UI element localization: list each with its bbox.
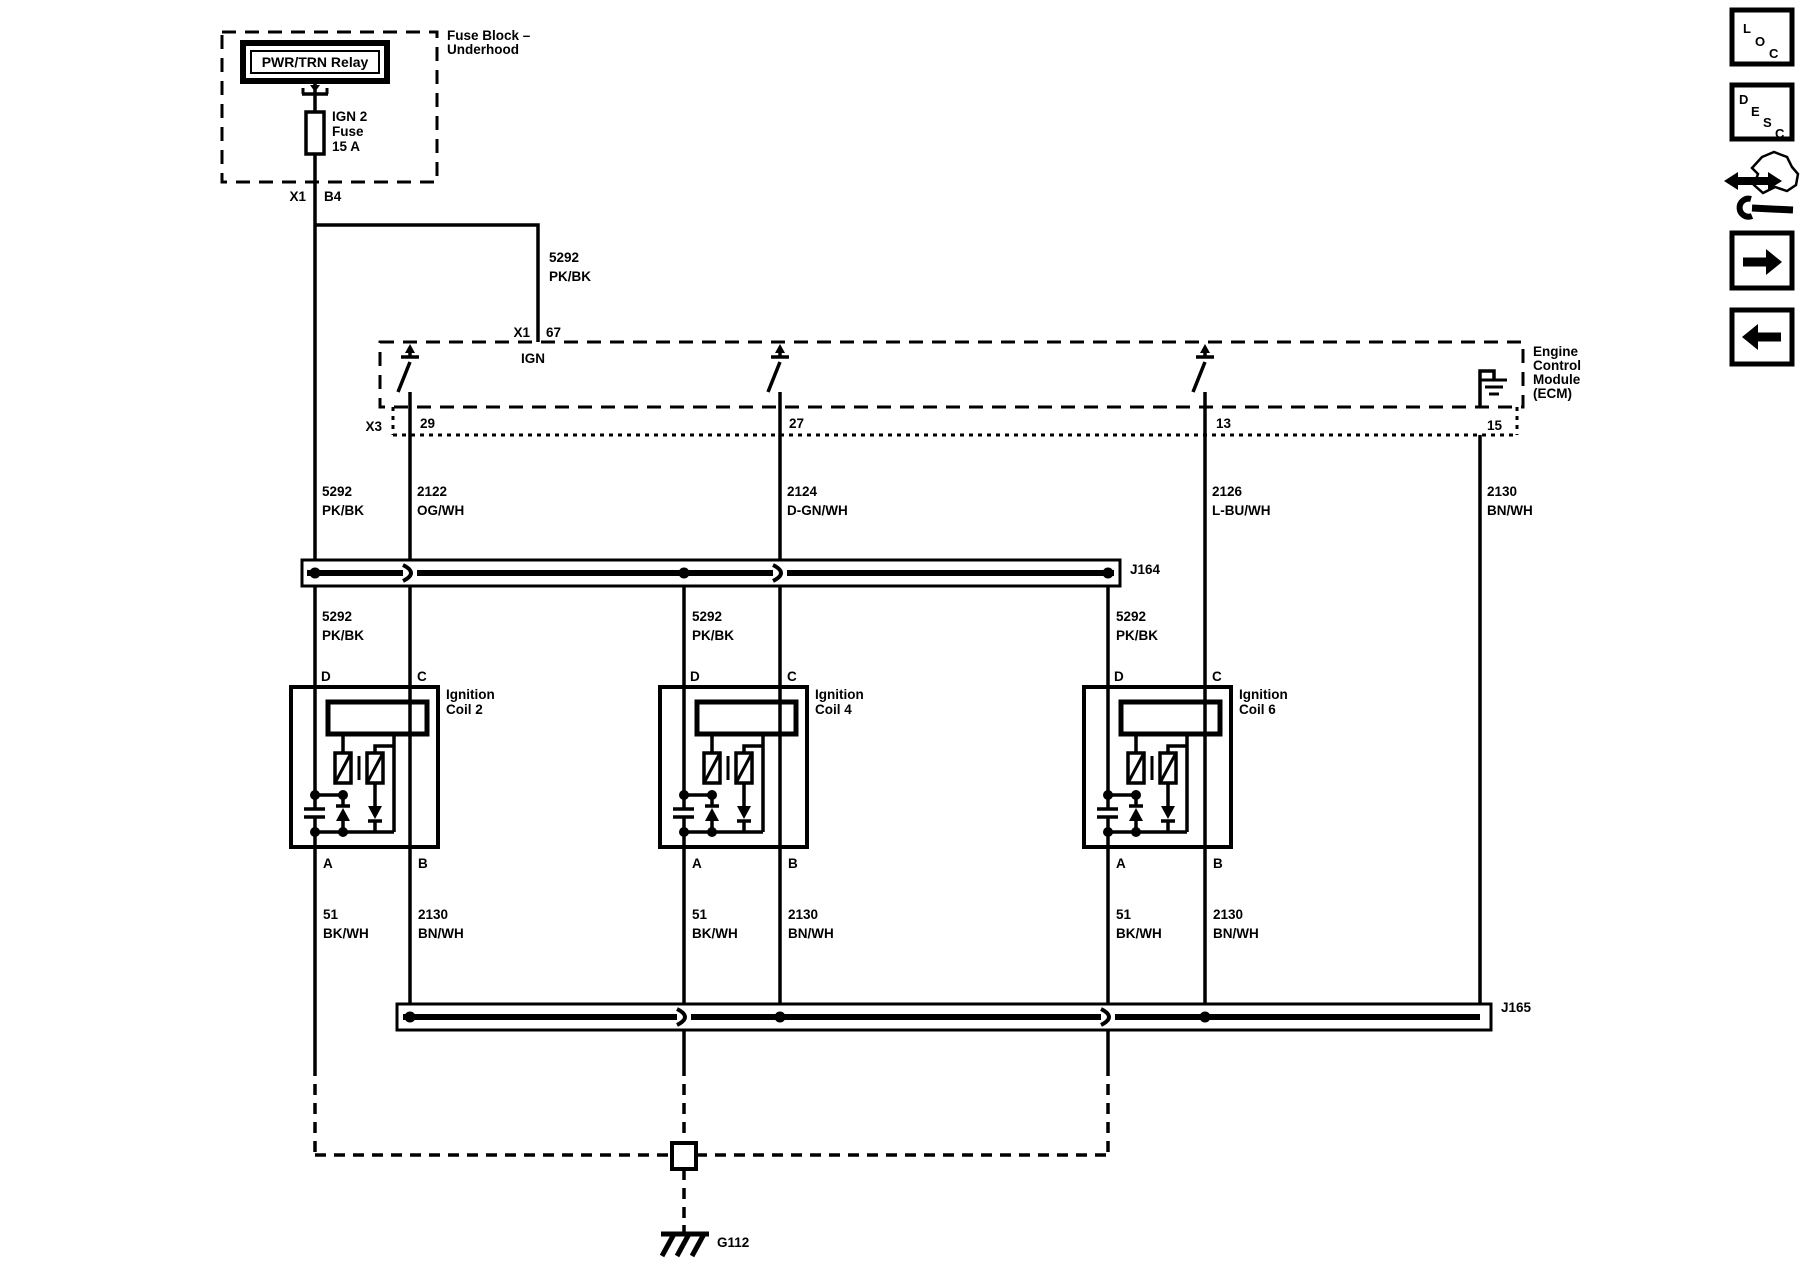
wire-label-color: BK/WH bbox=[692, 926, 738, 941]
coil-name-line1: Ignition bbox=[446, 687, 495, 702]
wire-label-circuit: 5292 bbox=[692, 609, 722, 624]
wire-label-color: BN/WH bbox=[418, 926, 464, 941]
loc-letter: C bbox=[1769, 46, 1779, 61]
ecm-name-line1: Engine bbox=[1533, 344, 1578, 359]
wire-label-color: D-GN/WH bbox=[787, 503, 848, 518]
wire-label-color: L-BU/WH bbox=[1212, 503, 1270, 518]
ground-label: G112 bbox=[717, 1235, 749, 1250]
coil-pin-b: B bbox=[418, 856, 428, 871]
coil-pin-a: A bbox=[692, 856, 702, 871]
wire-label-color: PK/BK bbox=[322, 503, 364, 518]
loc-letter: L bbox=[1743, 21, 1751, 36]
coil-name-line2: Coil 6 bbox=[1239, 702, 1276, 717]
ecm-name-line2: Control bbox=[1533, 358, 1581, 373]
ecm-ign-label: IGN bbox=[521, 351, 545, 366]
fuse-name: IGN 2 bbox=[332, 109, 367, 124]
wire-label-color: BN/WH bbox=[788, 926, 834, 941]
fuse-block-pin-id: B4 bbox=[324, 189, 342, 204]
fuse-block-connector-id: X1 bbox=[289, 189, 306, 204]
wire-label-color: BK/WH bbox=[323, 926, 369, 941]
coil-pin-c: C bbox=[417, 669, 427, 684]
splice-j165: J165 bbox=[397, 1000, 1532, 1030]
coil-pin-c: C bbox=[1212, 669, 1222, 684]
desc-letter: S bbox=[1763, 115, 1772, 130]
desc-letter: E bbox=[1751, 104, 1760, 119]
coil-pin-b: B bbox=[1213, 856, 1223, 871]
wiring-diagram-page: Fuse Block – Underhood PWR/TRN Relay IGN… bbox=[0, 0, 1800, 1280]
ecm-pin-13: 13 bbox=[1216, 416, 1232, 431]
wire-label-color: OG/WH bbox=[417, 503, 464, 518]
wire-label-circuit: 2130 bbox=[788, 907, 818, 922]
ecm-name-line4: (ECM) bbox=[1533, 386, 1572, 401]
wire-label-circuit: 5292 bbox=[322, 484, 352, 499]
splice-j165-label: J165 bbox=[1501, 1000, 1532, 1015]
ecm-pin-27: 27 bbox=[789, 416, 804, 431]
wire-label-circuit: 51 bbox=[1116, 907, 1132, 922]
relay-label: PWR/TRN Relay bbox=[262, 54, 369, 70]
wire-label-circuit: 2124 bbox=[787, 484, 818, 499]
ecm-pin-top: 67 bbox=[546, 325, 561, 340]
coil-pin-c: C bbox=[787, 669, 797, 684]
wire-label-circuit: 2130 bbox=[418, 907, 448, 922]
coil-pin-d: D bbox=[321, 669, 331, 684]
ecm-name-line3: Module bbox=[1533, 372, 1581, 387]
fuse-rating: 15 A bbox=[332, 139, 360, 154]
desc-letter: D bbox=[1739, 92, 1748, 107]
wire-label-circuit: 2130 bbox=[1213, 907, 1243, 922]
ecm-pin-29: 29 bbox=[420, 416, 435, 431]
wire-label-color: PK/BK bbox=[549, 269, 591, 284]
back-button[interactable] bbox=[1732, 310, 1792, 364]
coil-name-line1: Ignition bbox=[1239, 687, 1288, 702]
desc-button[interactable]: D E S C bbox=[1732, 85, 1792, 141]
fuse-block-title-line2: Underhood bbox=[447, 42, 519, 57]
ecm-connector-top: X1 bbox=[513, 325, 530, 340]
pwr-trn-relay: PWR/TRN Relay bbox=[243, 43, 387, 81]
wire-label-color: BK/WH bbox=[1116, 926, 1162, 941]
coil-pin-d: D bbox=[690, 669, 700, 684]
coil-pin-b: B bbox=[788, 856, 798, 871]
wire-label-color: BN/WH bbox=[1213, 926, 1259, 941]
coil-pin-a: A bbox=[323, 856, 333, 871]
ign2-fuse-symbol bbox=[306, 112, 324, 154]
ecm-connector-bottom: X3 bbox=[365, 419, 382, 434]
wire-label-color: BN/WH bbox=[1487, 503, 1533, 518]
wire-label-circuit: 2126 bbox=[1212, 484, 1243, 499]
coil-name-line2: Coil 2 bbox=[446, 702, 483, 717]
wire-label-color: PK/BK bbox=[1116, 628, 1158, 643]
loc-letter: O bbox=[1755, 34, 1765, 49]
forward-button[interactable] bbox=[1732, 233, 1792, 288]
loc-button[interactable]: L O C bbox=[1732, 10, 1792, 64]
wire-label-color: PK/BK bbox=[692, 628, 734, 643]
wire-label-circuit: 5292 bbox=[1116, 609, 1146, 624]
coil-name-line2: Coil 4 bbox=[815, 702, 852, 717]
desc-letter: C bbox=[1775, 126, 1785, 141]
splice-j164: J164 bbox=[302, 560, 1161, 586]
page-background bbox=[0, 0, 1800, 1280]
ecm-pin-15: 15 bbox=[1487, 418, 1503, 433]
fuse-block-title-line1: Fuse Block – bbox=[447, 28, 531, 43]
wire-label-circuit: 2130 bbox=[1487, 484, 1517, 499]
wire-label-circuit: 51 bbox=[323, 907, 339, 922]
wire-label-circuit: 51 bbox=[692, 907, 708, 922]
wire-label-circuit: 2122 bbox=[417, 484, 447, 499]
wire-label-circuit: 5292 bbox=[322, 609, 352, 624]
coil-name-line1: Ignition bbox=[815, 687, 864, 702]
wire-label-circuit: 5292 bbox=[549, 250, 579, 265]
coil-pin-d: D bbox=[1114, 669, 1124, 684]
coil-pin-a: A bbox=[1116, 856, 1126, 871]
wire-label-color: PK/BK bbox=[322, 628, 364, 643]
fuse-type: Fuse bbox=[332, 124, 364, 139]
splice-j164-label: J164 bbox=[1130, 562, 1161, 577]
